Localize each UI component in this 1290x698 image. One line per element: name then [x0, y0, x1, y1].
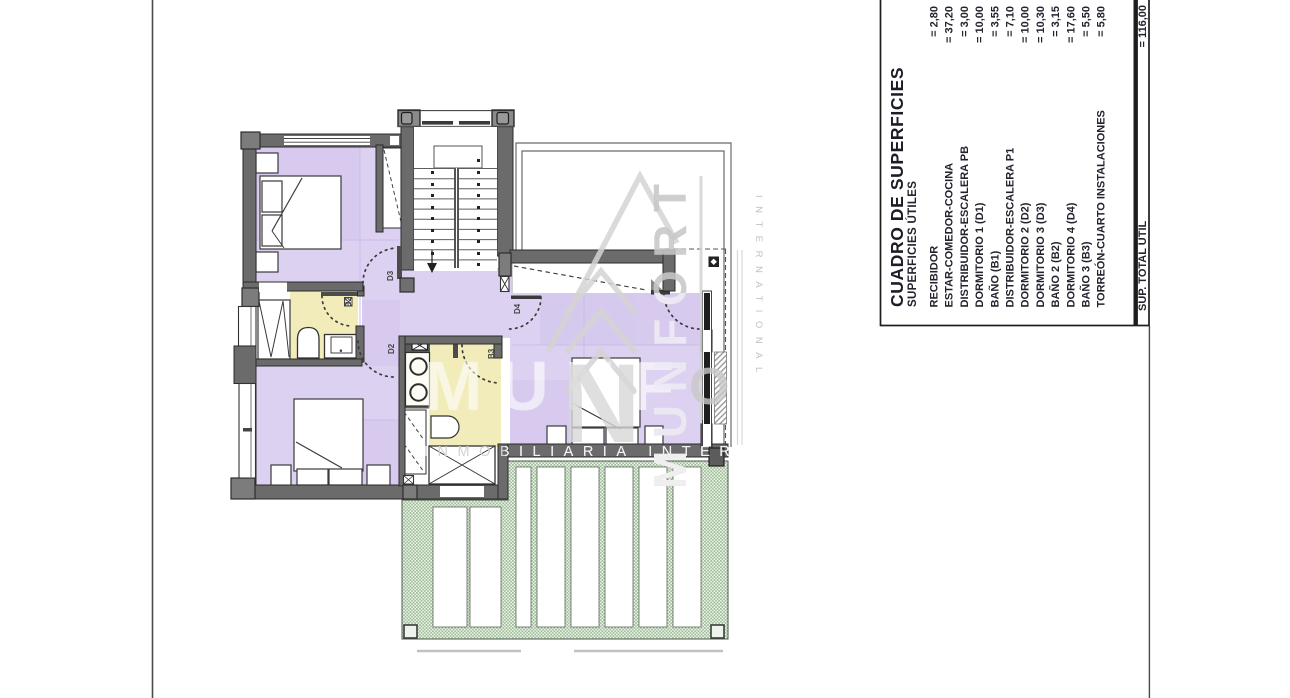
- svg-text:RECIBIDOR: RECIBIDOR: [929, 246, 941, 308]
- svg-text:= 2,80: = 2,80: [929, 6, 941, 37]
- svg-text:DORMITORIO 4 (D4): DORMITORIO 4 (D4): [1065, 202, 1077, 307]
- svg-text:DORMITORIO 3 (D3): DORMITORIO 3 (D3): [1035, 202, 1047, 307]
- svg-text:B2: B2: [344, 296, 353, 307]
- svg-text:= 37,20: = 37,20: [944, 6, 956, 43]
- svg-text:= 3,55: = 3,55: [989, 6, 1001, 37]
- svg-text:D4: D4: [513, 303, 522, 314]
- svg-text:= 5,50: = 5,50: [1081, 6, 1093, 37]
- svg-text:DISTRIBUIDOR-ESCALERA PB: DISTRIBUIDOR-ESCALERA PB: [959, 146, 971, 308]
- svg-text:= 116,00: = 116,00: [1137, 5, 1149, 48]
- svg-text:BAÑO 2 (B2): BAÑO 2 (B2): [1049, 241, 1062, 307]
- svg-text:CUADRO DE SUPERFICIES: CUADRO DE SUPERFICIES: [887, 67, 907, 307]
- svg-text:SUPERFICIES ÚTILES: SUPERFICIES ÚTILES: [906, 181, 919, 307]
- svg-text:= 5,80: = 5,80: [1096, 6, 1108, 37]
- svg-text:SUP. TOTAL ÚTIL: SUP. TOTAL ÚTIL: [1136, 220, 1149, 311]
- svg-text:= 17,60: = 17,60: [1065, 6, 1077, 43]
- svg-text:BAÑO (B1): BAÑO (B1): [988, 250, 1001, 307]
- svg-text:= 3,15: = 3,15: [1050, 6, 1062, 37]
- svg-text:DORMITORIO 2 (D2): DORMITORIO 2 (D2): [1020, 202, 1032, 307]
- svg-text:= 10,00: = 10,00: [1020, 6, 1032, 43]
- svg-text:BAÑO 3 (B3): BAÑO 3 (B3): [1080, 241, 1093, 307]
- svg-text:DISTRIBUIDOR-ESCALERA P1: DISTRIBUIDOR-ESCALERA P1: [1005, 148, 1017, 308]
- svg-text:TORREÓN-CUARTO INSTALACIONES: TORREÓN-CUARTO INSTALACIONES: [1095, 110, 1108, 307]
- svg-text:= 10,00: = 10,00: [974, 6, 986, 43]
- svg-text:D2: D2: [387, 343, 396, 354]
- svg-text:= 7,10: = 7,10: [1005, 6, 1017, 37]
- svg-text:DORMITORIO 1 (D1): DORMITORIO 1 (D1): [974, 202, 986, 307]
- svg-text:ESTAR-COMEDOR-COCINA: ESTAR-COMEDOR-COCINA: [944, 163, 956, 308]
- svg-text:INTERNATIONAL: INTERNATIONAL: [753, 195, 764, 381]
- svg-text:D3: D3: [386, 270, 395, 281]
- svg-text:= 3,00: = 3,00: [959, 6, 971, 37]
- svg-text:= 10,30: = 10,30: [1035, 6, 1047, 43]
